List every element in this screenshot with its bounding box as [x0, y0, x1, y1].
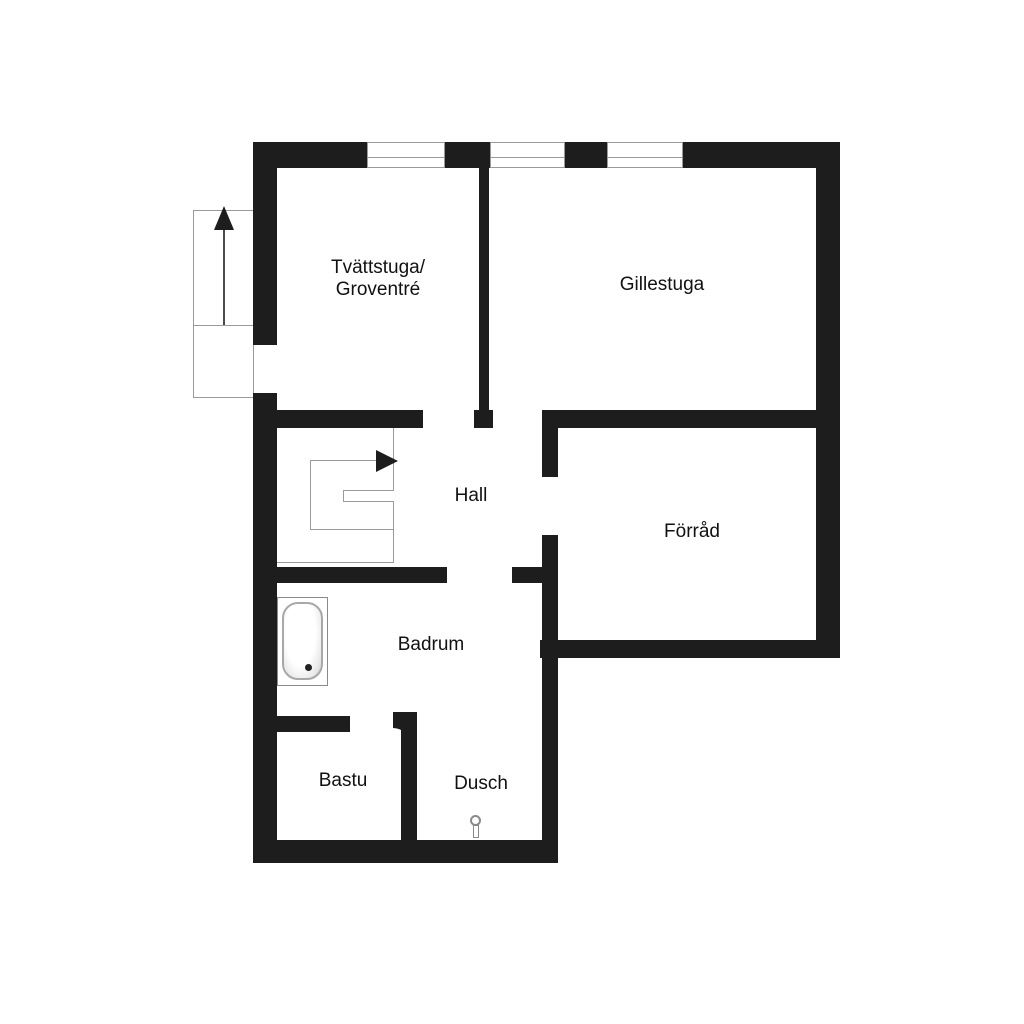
wall-forrad-bottom [540, 640, 840, 658]
room-label-tvattstuga-line1: Tvättstuga/ [298, 257, 458, 279]
window-mullion [608, 157, 682, 158]
window-mullion [491, 157, 564, 158]
wall-right [816, 142, 840, 658]
wall-forrad-door-jamb [542, 410, 558, 477]
wall-bastu-top [275, 716, 350, 732]
room-label-hall: Hall [431, 485, 511, 507]
wall-tvattstuga-bottom [277, 410, 423, 428]
right-arrow-icon [376, 450, 398, 472]
wall-hall-forrad-dusch-right [542, 535, 558, 840]
stair-landing-notch [343, 490, 394, 502]
shower-mixer-stem [473, 825, 479, 838]
window-icon-3 [607, 142, 683, 168]
room-label-badrum: Badrum [351, 634, 511, 656]
wall-top-pier-2 [565, 142, 607, 168]
room-label-gillestuga: Gillestuga [582, 274, 742, 296]
wall-divider-tvattstuga-gillestuga [479, 168, 489, 412]
wall-badrum-top-stub [512, 567, 543, 583]
bathtub-drain [305, 664, 312, 671]
wall-divider-cap [474, 410, 493, 428]
bathtub-basin [282, 602, 323, 680]
wall-left-upper [253, 142, 277, 345]
stair-edge-bottom [277, 562, 394, 563]
room-label-dusch: Dusch [421, 773, 541, 795]
window-icon-1 [367, 142, 445, 168]
floor-plan: Tvättstuga/ Groventré Gillestuga Hall Fö… [0, 0, 1024, 1024]
wall-bottom [253, 840, 558, 863]
window-icon-2 [490, 142, 565, 168]
up-arrow-icon [214, 206, 234, 230]
room-label-tvattstuga-line2: Groventré [298, 279, 458, 301]
room-label-forrad: Förråd [612, 521, 772, 543]
wall-left-lower [253, 393, 277, 863]
wall-badrum-top-left [275, 567, 447, 583]
wall-dusch-left [401, 728, 417, 840]
wall-top-pier-1 [445, 142, 490, 168]
window-mullion [368, 157, 444, 158]
wall-forrad-top [548, 410, 816, 428]
bathtub-icon [277, 597, 328, 686]
room-label-tvattstuga: Tvättstuga/ Groventré [298, 257, 458, 301]
up-arrow-shaft [223, 228, 225, 325]
room-label-bastu: Bastu [283, 770, 403, 792]
entry-stairs-landing [193, 325, 254, 398]
